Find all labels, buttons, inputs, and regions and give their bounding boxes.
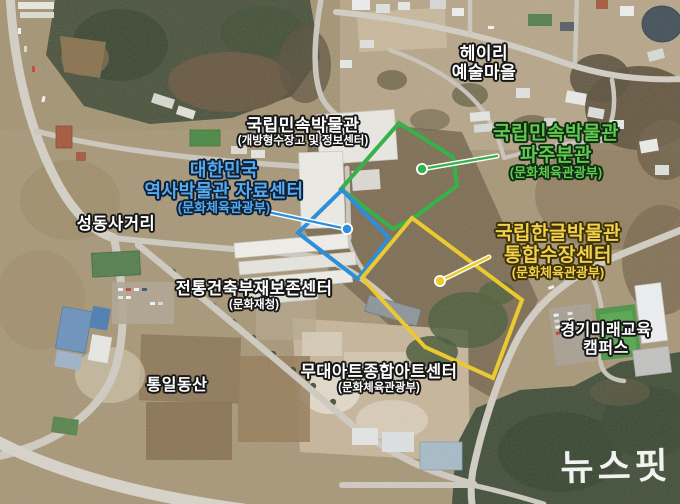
label-traditional-architecture-center: 전통건축부재보존센터 (문화재청) [176, 280, 333, 312]
label-subline: (문화체육관광부) [301, 382, 458, 395]
label-seongdong-intersection: 성동사거리 [77, 215, 155, 234]
hangeul_site-marker-dot [436, 277, 444, 285]
label-stage-art-center: 무대아트종합아트센터 (문화체육관광부) [301, 363, 458, 395]
label-heyri-village: 헤이리 예술마을 [452, 44, 517, 83]
satellite-map: 헤이리 예술마을 국립민속박물관 (개방형수장고 및 정보센터) 국립민속박물관… [0, 0, 680, 504]
label-subline: (문화체육관광부) [493, 166, 619, 181]
label-line: 파주분관 [493, 145, 619, 167]
label-hangeul-museum-storage: 국립한글박물관 통합수장센터 (문화체육관광부) [495, 223, 621, 281]
label-subline: (문화체육관광부) [495, 266, 621, 281]
label-line: 헤이리 [452, 44, 517, 63]
label-subline: (문화체육관광부) [144, 201, 303, 216]
label-line: 국립한글박물관 [495, 223, 621, 245]
label-line: 국립민속박물관 [493, 123, 619, 145]
label-gyeonggi-future-campus: 경기미래교육 캠퍼스 [560, 322, 651, 358]
label-line: 예술마을 [452, 63, 517, 82]
history_site-marker-dot [343, 225, 351, 233]
label-subline: (개방형수장고 및 정보센터) [238, 135, 368, 148]
label-line: 전통건축부재보존센터 [176, 280, 333, 299]
folk_paju_site-pointer-line [422, 156, 497, 169]
label-tongil-dongsan: 통일동산 [147, 377, 208, 395]
folk_paju_site-marker-dot [418, 165, 426, 173]
label-line: 성동사거리 [77, 215, 155, 234]
label-line: 대한민국 [144, 160, 303, 181]
label-line: 통일동산 [147, 377, 208, 395]
label-line: 통합수장센터 [495, 245, 621, 267]
label-line: 역사박물관 자료센터 [144, 181, 303, 202]
label-line: 캠퍼스 [560, 340, 651, 358]
label-history-museum-center: 대한민국 역사박물관 자료센터 (문화체육관광부) [144, 160, 303, 216]
label-line: 국립민속박물관 [238, 116, 368, 135]
label-line: 경기미래교육 [560, 322, 651, 340]
history_site-boundary-polygon [298, 190, 389, 279]
label-line: 무대아트종합아트센터 [301, 363, 458, 382]
newsfit-watermark: 뉴스핏 [560, 437, 672, 491]
label-subline: (문화재청) [176, 299, 333, 312]
label-folk-museum-paju-branch: 국립민속박물관 파주분관 (문화체육관광부) [493, 123, 619, 181]
label-folk-museum-storage: 국립민속박물관 (개방형수장고 및 정보센터) [238, 116, 368, 148]
